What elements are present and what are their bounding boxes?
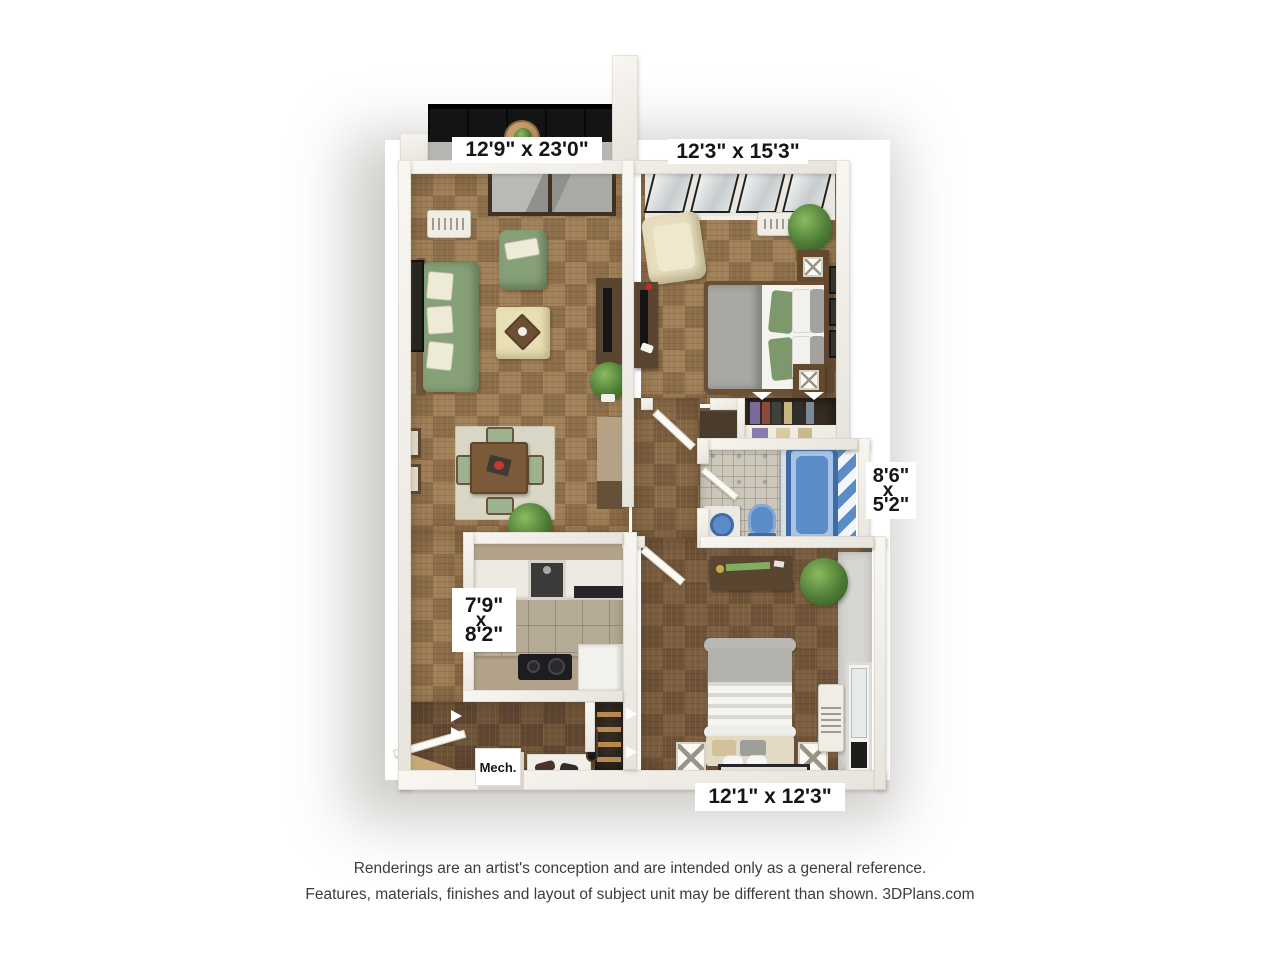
wall-right-bedroom1 [836, 160, 850, 450]
wall-kitchen-bottom [463, 690, 623, 702]
living-sideboard-base [597, 481, 623, 509]
bedroom2-ac-unit [818, 684, 844, 752]
sofa-pillow-3 [426, 341, 455, 372]
bathroom-tub-water [796, 456, 828, 534]
kitchen-dim-sep: x [476, 616, 487, 625]
bedroom1-pillow-white-1 [792, 289, 812, 333]
living-sideboard [597, 417, 623, 481]
wall-bedroom1-bottom-a [641, 398, 653, 410]
bedroom1-lamp-bottom [799, 370, 819, 390]
bathroom-striped-towel [838, 446, 856, 544]
closet-towel-2 [776, 428, 790, 438]
wall-bath-top [697, 438, 858, 450]
disclaimer-line-1: Renderings are an artist's conception an… [0, 856, 1280, 882]
bathroom-dimension-label: 8'6" x 5'2" [866, 462, 916, 519]
entry-closet-shelf-3 [597, 742, 621, 747]
wall-hall-bath-a [697, 438, 709, 464]
dining-chair-bottom [486, 497, 514, 515]
bedroom2-sliding-door-gap [851, 742, 867, 768]
bedroom1-lamp-top [803, 257, 823, 277]
bedroom1-plant [788, 204, 832, 252]
bathroom-dim-sep: x [883, 486, 894, 495]
dining-centerpiece [494, 461, 504, 470]
wall-left [398, 160, 411, 790]
wall-stub-top [612, 55, 638, 162]
kitchen-dishwasher-strip [574, 586, 623, 598]
kitchen-dimension-label: 7'9" x 8'2" [452, 588, 516, 652]
living-tv [603, 288, 612, 352]
living-plant-pot [601, 394, 615, 402]
wall-kitchen-right [623, 532, 637, 770]
closet-clothes-3 [772, 402, 781, 424]
bedroom1-tv [640, 290, 648, 348]
bedroom1-tv-red-light [646, 284, 652, 290]
wall-bedroom2-top-b [700, 536, 874, 548]
bathroom-sink [710, 513, 734, 537]
shower-glass [779, 446, 786, 544]
bedroom2-dresser-bowl [716, 565, 724, 573]
ottoman-cup [518, 327, 527, 336]
living-room-dimension-label: 12'9" x 23'0" [452, 137, 602, 163]
patio-glass-door-divider [548, 168, 552, 214]
bedroom2-dresser-item [774, 560, 785, 567]
kitchen-burner-2 [548, 658, 565, 675]
entry-closet-shelf-4 [597, 757, 621, 762]
closet-clothes-2 [762, 402, 770, 424]
disclaimer-line-2: Features, materials, finishes and layout… [0, 882, 1280, 908]
kitchen-upper-cabinets [474, 544, 623, 560]
living-ac-unit [427, 210, 471, 238]
mech-closet-label: Mech. [475, 748, 521, 786]
wall-kitchen-top [463, 532, 623, 544]
bedroom2-bed-duvet [708, 682, 792, 730]
bedroom2-dimension-label: 12'1" x 12'3" [695, 783, 845, 811]
sofa-pillow-2 [426, 305, 454, 335]
closet-clothes-5 [794, 402, 803, 424]
wall-balcony-parapet [400, 133, 428, 162]
kitchen-fridge [578, 644, 623, 692]
bedroom2-bench-pillow-tan [712, 740, 736, 756]
closet-clothes-4 [784, 402, 792, 424]
dining-chair-right [527, 455, 544, 485]
wall-right-bedroom2 [874, 536, 886, 790]
entry-closet-shelf-1 [597, 712, 621, 717]
wall-entry-partition [585, 702, 595, 752]
sofa-pillow-1 [426, 271, 454, 301]
bedroom1-pillow-gray-1 [810, 289, 825, 333]
bedroom1-dimension-label: 12'3" x 15'3" [668, 139, 808, 164]
kitchen-faucet [543, 566, 551, 574]
closet-towel-1 [752, 428, 768, 438]
kitchen-burner-1 [527, 660, 540, 673]
closet-clothes-6 [806, 402, 814, 424]
bedroom2-sliding-door-glass [851, 668, 867, 738]
hall-wardrobe [700, 408, 738, 438]
bathroom-toilet [748, 504, 776, 536]
closet-towel-3 [798, 428, 812, 438]
bedroom2-bench-pillow-gray [740, 740, 766, 756]
disclaimer: Renderings are an artist's conception an… [0, 856, 1280, 908]
wall-closet1-lip [737, 398, 745, 443]
closet-clothes-1 [750, 402, 760, 424]
bedroom1-bed-duvet [708, 285, 762, 389]
bedroom2-bed-upper [708, 648, 792, 682]
bedroom2-plant [800, 558, 848, 606]
wall-divider-living-bedroom1 [622, 160, 634, 507]
bedroom1-armchair-cushion [652, 222, 696, 273]
floorplan-page: 12'9" x 23'0" 12'3" x 15'3" 8'6" x 5'2" … [0, 0, 1280, 960]
entry-closet-shelf-2 [597, 727, 621, 732]
